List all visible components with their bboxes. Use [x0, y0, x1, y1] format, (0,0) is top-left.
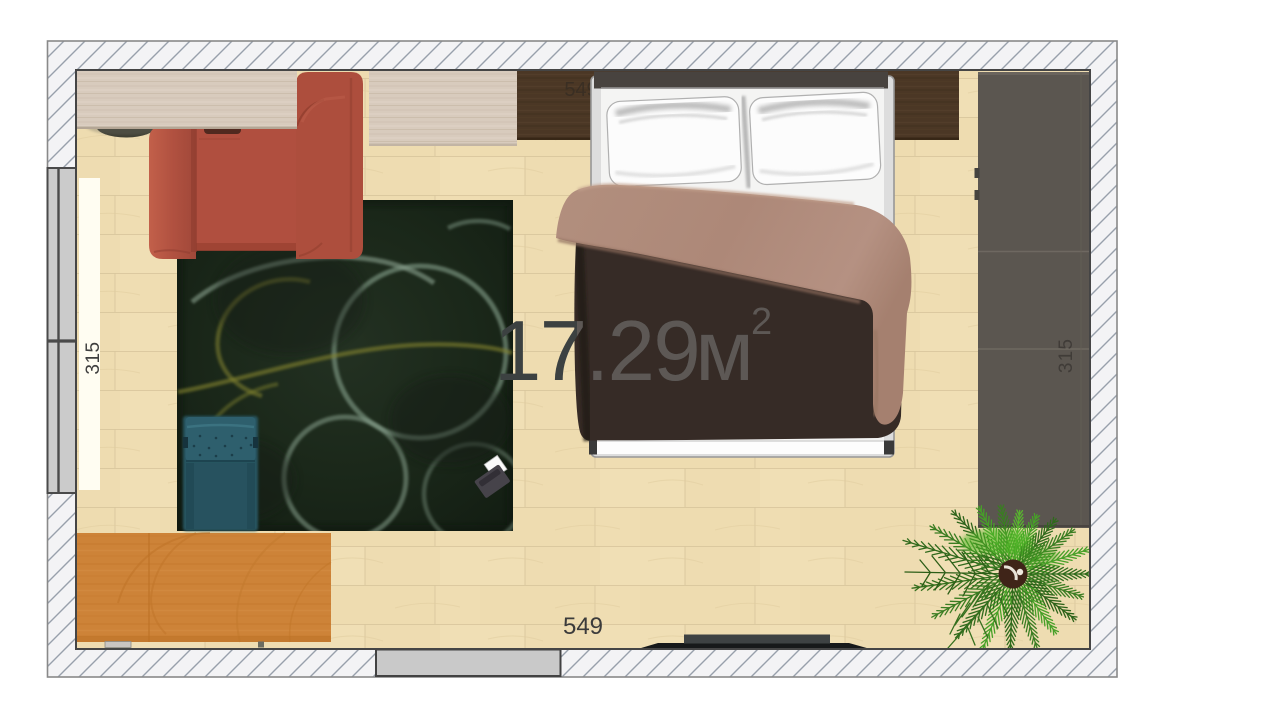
svg-text:315: 315 [1056, 338, 1077, 373]
svg-text:549: 549 [563, 613, 603, 640]
svg-text:2: 2 [751, 301, 772, 343]
svg-text:315: 315 [83, 341, 104, 374]
